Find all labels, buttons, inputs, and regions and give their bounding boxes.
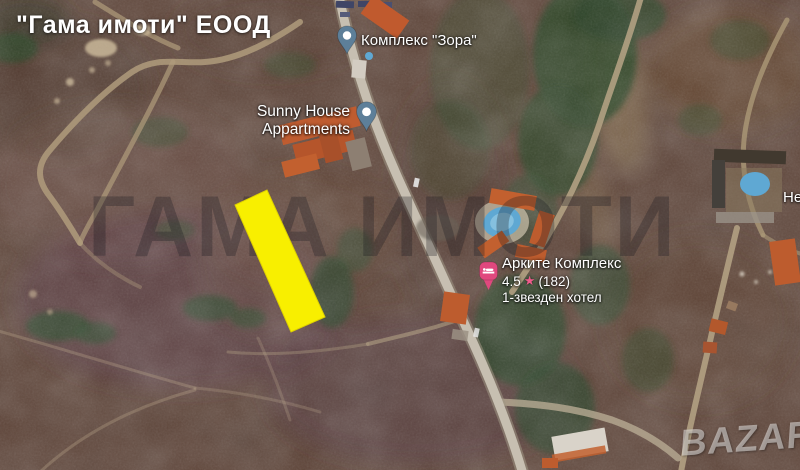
arkite-review-count: (182) — [538, 274, 570, 289]
place-pin-icon — [336, 24, 358, 56]
place-pin-icon — [355, 100, 378, 133]
label-zora-complex[interactable]: Комплекс "Зора" — [361, 32, 477, 49]
arkite-rating-value: 4.5 — [502, 274, 521, 289]
agency-title: "Гама имоти" ЕООД — [16, 11, 271, 40]
star-icon: ★ — [524, 273, 536, 289]
label-arkite-name[interactable]: Арките Комплекс — [502, 255, 621, 272]
bazar-logo-watermark: BAZAR — [679, 413, 800, 465]
listing-screenshot: ГАМА ИМОТИ "Гама имоти" ЕООД Комплекс "З… — [0, 0, 800, 470]
label-arkite-category: 1-звезден хотел — [502, 290, 602, 305]
label-edge-cutoff[interactable]: Не — [783, 189, 800, 206]
sunny-house-line2: Appartments — [257, 121, 350, 139]
sunny-house-line1: Sunny House — [257, 103, 350, 121]
label-sunny-house[interactable]: Sunny House Appartments — [257, 103, 350, 139]
arkite-rating-row[interactable]: 4.5 ★ (182) — [502, 273, 570, 289]
hotel-bed-pin-icon — [477, 260, 500, 291]
